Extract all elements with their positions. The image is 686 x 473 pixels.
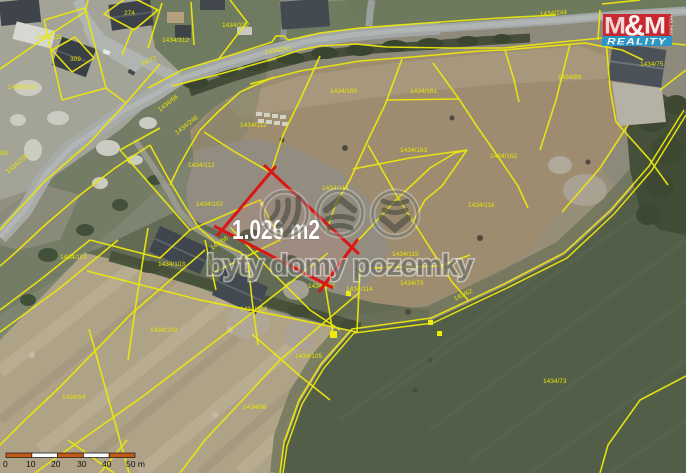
svg-text:1434/100: 1434/100 bbox=[150, 327, 177, 334]
svg-text:HOLDING: HOLDING bbox=[669, 16, 674, 35]
svg-text:1434/112: 1434/112 bbox=[188, 162, 215, 169]
svg-text:30: 30 bbox=[77, 459, 87, 469]
svg-text:byty domy pozemky: byty domy pozemky bbox=[206, 249, 474, 282]
svg-text:1434/104: 1434/104 bbox=[240, 306, 267, 313]
svg-text:1434/322: 1434/322 bbox=[222, 22, 249, 29]
svg-text:1434/163: 1434/163 bbox=[400, 147, 427, 154]
svg-text:1434/102: 1434/102 bbox=[196, 201, 223, 208]
svg-text:20: 20 bbox=[51, 459, 61, 469]
svg-text:1434/105: 1434/105 bbox=[295, 353, 322, 360]
svg-text:M: M bbox=[604, 13, 626, 40]
svg-text:/82: /82 bbox=[0, 150, 9, 157]
svg-text:1434/98: 1434/98 bbox=[243, 404, 267, 411]
svg-text:10: 10 bbox=[26, 459, 36, 469]
svg-text:40: 40 bbox=[102, 459, 112, 469]
svg-text:1434/88: 1434/88 bbox=[558, 74, 582, 81]
svg-text:274: 274 bbox=[124, 10, 135, 17]
svg-text:1434/101: 1434/101 bbox=[60, 254, 87, 261]
svg-text:50 m: 50 m bbox=[126, 459, 145, 469]
svg-text:1434/73: 1434/73 bbox=[543, 378, 567, 385]
svg-text:1424/111: 1424/111 bbox=[36, 34, 63, 41]
svg-text:1434/75: 1434/75 bbox=[640, 61, 664, 68]
svg-text:1434/206: 1434/206 bbox=[8, 84, 35, 91]
svg-text:1434/116: 1434/116 bbox=[468, 202, 495, 209]
svg-text:1434/103: 1434/103 bbox=[158, 261, 185, 268]
svg-text:1434/162: 1434/162 bbox=[490, 153, 517, 160]
svg-text:0: 0 bbox=[3, 459, 8, 469]
svg-text:1434/312: 1434/312 bbox=[162, 37, 189, 44]
svg-text:REALITY: REALITY bbox=[607, 37, 668, 48]
svg-text:1434/94: 1434/94 bbox=[62, 394, 86, 401]
svg-text:1434/160: 1434/160 bbox=[330, 88, 357, 95]
svg-text:309: 309 bbox=[70, 56, 81, 63]
svg-text:1434/161: 1434/161 bbox=[410, 88, 437, 95]
svg-text:M: M bbox=[644, 13, 666, 40]
svg-text:1434/112: 1434/112 bbox=[240, 122, 267, 129]
svg-text:1434/114: 1434/114 bbox=[346, 286, 373, 293]
